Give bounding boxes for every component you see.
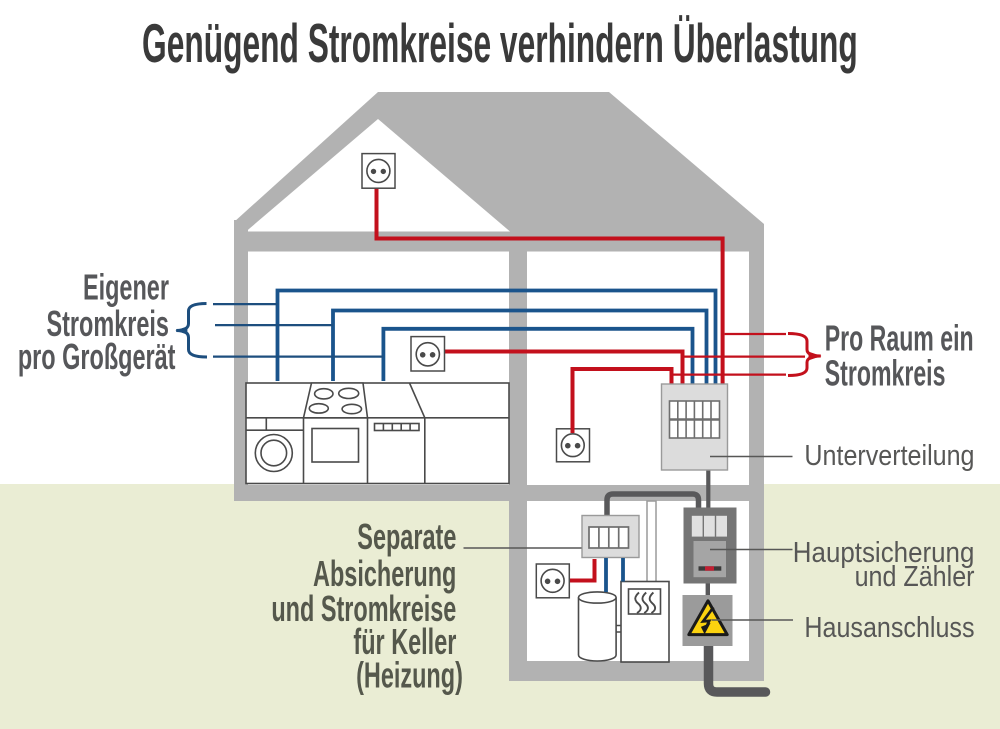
svg-text:Unterverteilung: Unterverteilung xyxy=(804,438,974,471)
svg-text:Genügend Stromkreise verhinder: Genügend Stromkreise verhindern Überlast… xyxy=(142,12,858,74)
svg-text:und Zähler: und Zähler xyxy=(855,559,975,592)
svg-text:Hausanschluss: Hausanschluss xyxy=(804,610,974,643)
